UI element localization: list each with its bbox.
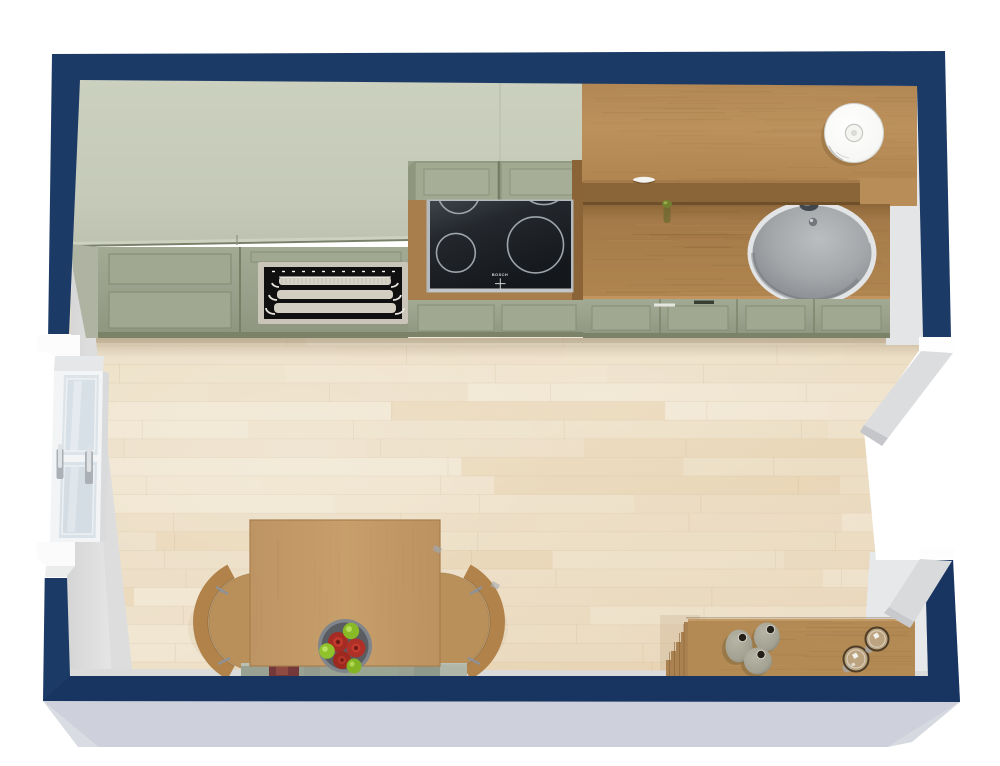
svg-text:BOSCH: BOSCH [492,272,508,277]
